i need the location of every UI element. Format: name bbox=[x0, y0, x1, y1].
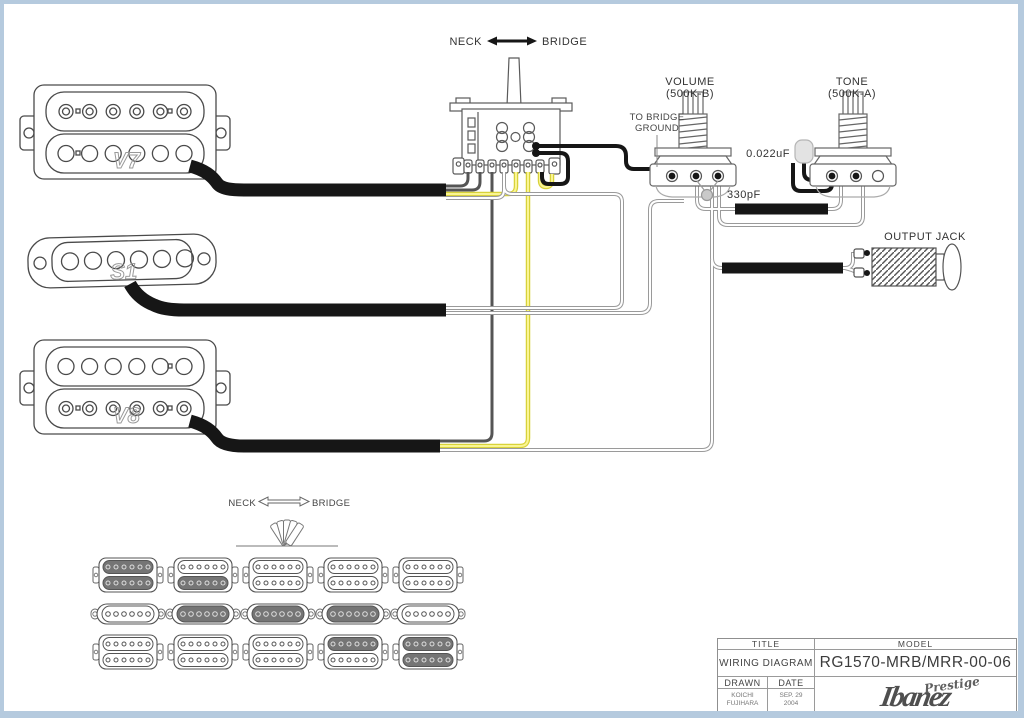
svg-text:TO BRIDGE: TO BRIDGE bbox=[630, 112, 685, 123]
date-value-line2: 2004 bbox=[784, 700, 798, 708]
tone-pot bbox=[810, 92, 896, 197]
tone-value-label: (500K-A) bbox=[828, 88, 876, 100]
selector-pos5-neck-humbucker-icon bbox=[393, 558, 463, 592]
selector-pos5-middle-single-icon bbox=[391, 604, 465, 624]
drawn-value-line1: KOICHI bbox=[731, 692, 753, 700]
pickup-selector-switch bbox=[450, 58, 572, 174]
volume-cap-label: 330pF bbox=[727, 189, 761, 201]
brand-logo: Prestige Ibanez bbox=[815, 677, 1016, 711]
selector-pos3-middle-single-icon bbox=[241, 604, 315, 624]
drawn-value-line2: FUJIHARA bbox=[727, 700, 759, 708]
selector-pos2-bridge-humbucker-icon bbox=[168, 635, 238, 669]
ibanez-logo: Ibanez bbox=[879, 683, 953, 712]
selector-pos1-middle-single-icon bbox=[91, 604, 165, 624]
selector-pos1-bridge-humbucker-icon bbox=[93, 635, 163, 669]
wiring-diagram-page: V7 S1 V8 bbox=[0, 0, 1024, 718]
switch-lugs bbox=[453, 158, 560, 174]
selector-pos3-neck-humbucker-icon bbox=[243, 558, 313, 592]
selector-pos1-neck-humbucker-icon bbox=[93, 558, 163, 592]
selector-pos4-middle-single-icon bbox=[316, 604, 390, 624]
hookup-wires bbox=[440, 142, 863, 450]
bridge-direction-label: BRIDGE bbox=[542, 36, 587, 48]
selector-pos2-middle-single-icon bbox=[166, 604, 240, 624]
selector-pos2-neck-humbucker-icon bbox=[168, 558, 238, 592]
svg-text:GROUND: GROUND bbox=[635, 123, 679, 134]
title-header: TITLE bbox=[718, 639, 815, 650]
neck-bridge-arrow-icon bbox=[487, 37, 537, 46]
volume-label: VOLUME bbox=[665, 76, 714, 88]
selector-position-grid bbox=[91, 558, 465, 669]
pickup-label-s1: S1 bbox=[110, 259, 138, 285]
tone-cap-label: 0.022uF bbox=[746, 148, 790, 160]
selector-guide-header: NECK BRIDGE bbox=[228, 497, 350, 546]
top-switch-direction: NECK BRIDGE bbox=[449, 36, 587, 48]
date-value-line1: SEP. 29 bbox=[779, 692, 802, 700]
selector-pos5-bridge-humbucker-icon bbox=[393, 635, 463, 669]
guide-bridge-label: BRIDGE bbox=[312, 498, 350, 509]
capacitor-330pf bbox=[702, 190, 713, 201]
switch-lever-fan bbox=[236, 520, 338, 546]
date-header: DATE bbox=[768, 677, 815, 689]
pickup-label-v7: V7 bbox=[113, 148, 142, 173]
pickup-label-v8: V8 bbox=[113, 403, 141, 428]
selector-pos3-bridge-humbucker-icon bbox=[243, 635, 313, 669]
volume-value-label: (500K-B) bbox=[666, 88, 714, 100]
middle-pickup-s1: S1 bbox=[27, 234, 216, 289]
guide-neck-bridge-arrow-icon bbox=[259, 497, 309, 506]
selector-pos4-bridge-humbucker-icon bbox=[318, 635, 388, 669]
guide-neck-label: NECK bbox=[228, 498, 256, 509]
title-value: WIRING DIAGRAM bbox=[718, 650, 815, 677]
drawn-header: DRAWN bbox=[718, 677, 768, 689]
title-block: TITLE MODEL WIRING DIAGRAM RG1570-MRB/MR… bbox=[717, 638, 1017, 712]
volume-pot bbox=[650, 92, 736, 201]
model-value: RG1570-MRB/MRR-00-06 bbox=[815, 650, 1016, 677]
neck-direction-label: NECK bbox=[449, 36, 482, 48]
model-header: MODEL bbox=[815, 639, 1016, 650]
date-value: SEP. 29 2004 bbox=[768, 689, 815, 711]
drawn-value: KOICHI FUJIHARA bbox=[718, 689, 768, 711]
diagram-canvas: V7 S1 V8 bbox=[4, 4, 1018, 711]
output-jack-label: OUTPUT JACK bbox=[884, 231, 966, 243]
output-jack bbox=[854, 244, 961, 290]
tone-label: TONE bbox=[836, 76, 868, 88]
capacitor-0022uf bbox=[795, 140, 813, 163]
selector-pos4-neck-humbucker-icon bbox=[318, 558, 388, 592]
